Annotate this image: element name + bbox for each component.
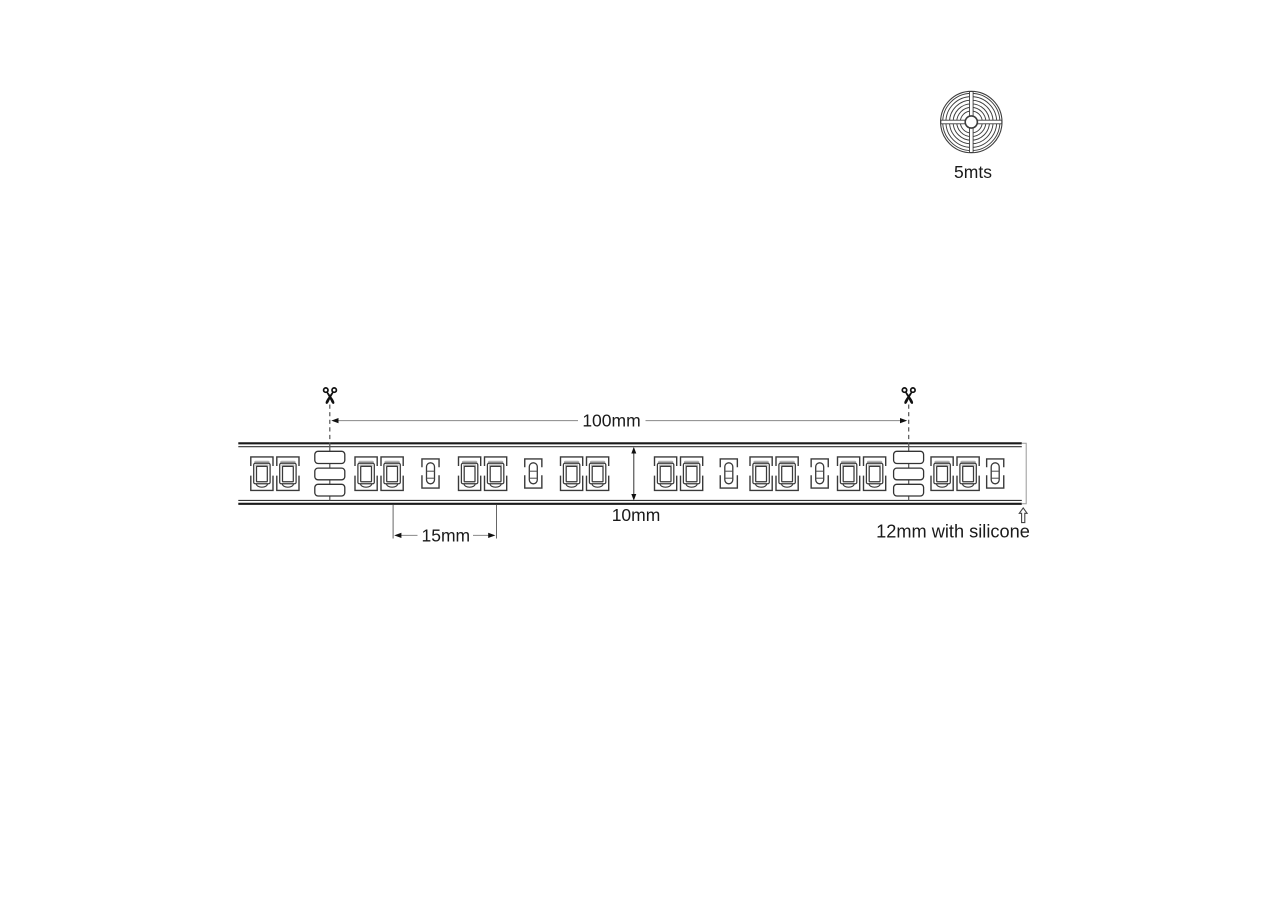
svg-text:10mm: 10mm — [612, 505, 661, 525]
svg-text:100mm: 100mm — [582, 411, 640, 431]
svg-text:5mts: 5mts — [954, 162, 992, 182]
svg-text:12mm with silicone: 12mm with silicone — [876, 522, 1030, 542]
svg-text:15mm: 15mm — [421, 525, 470, 545]
